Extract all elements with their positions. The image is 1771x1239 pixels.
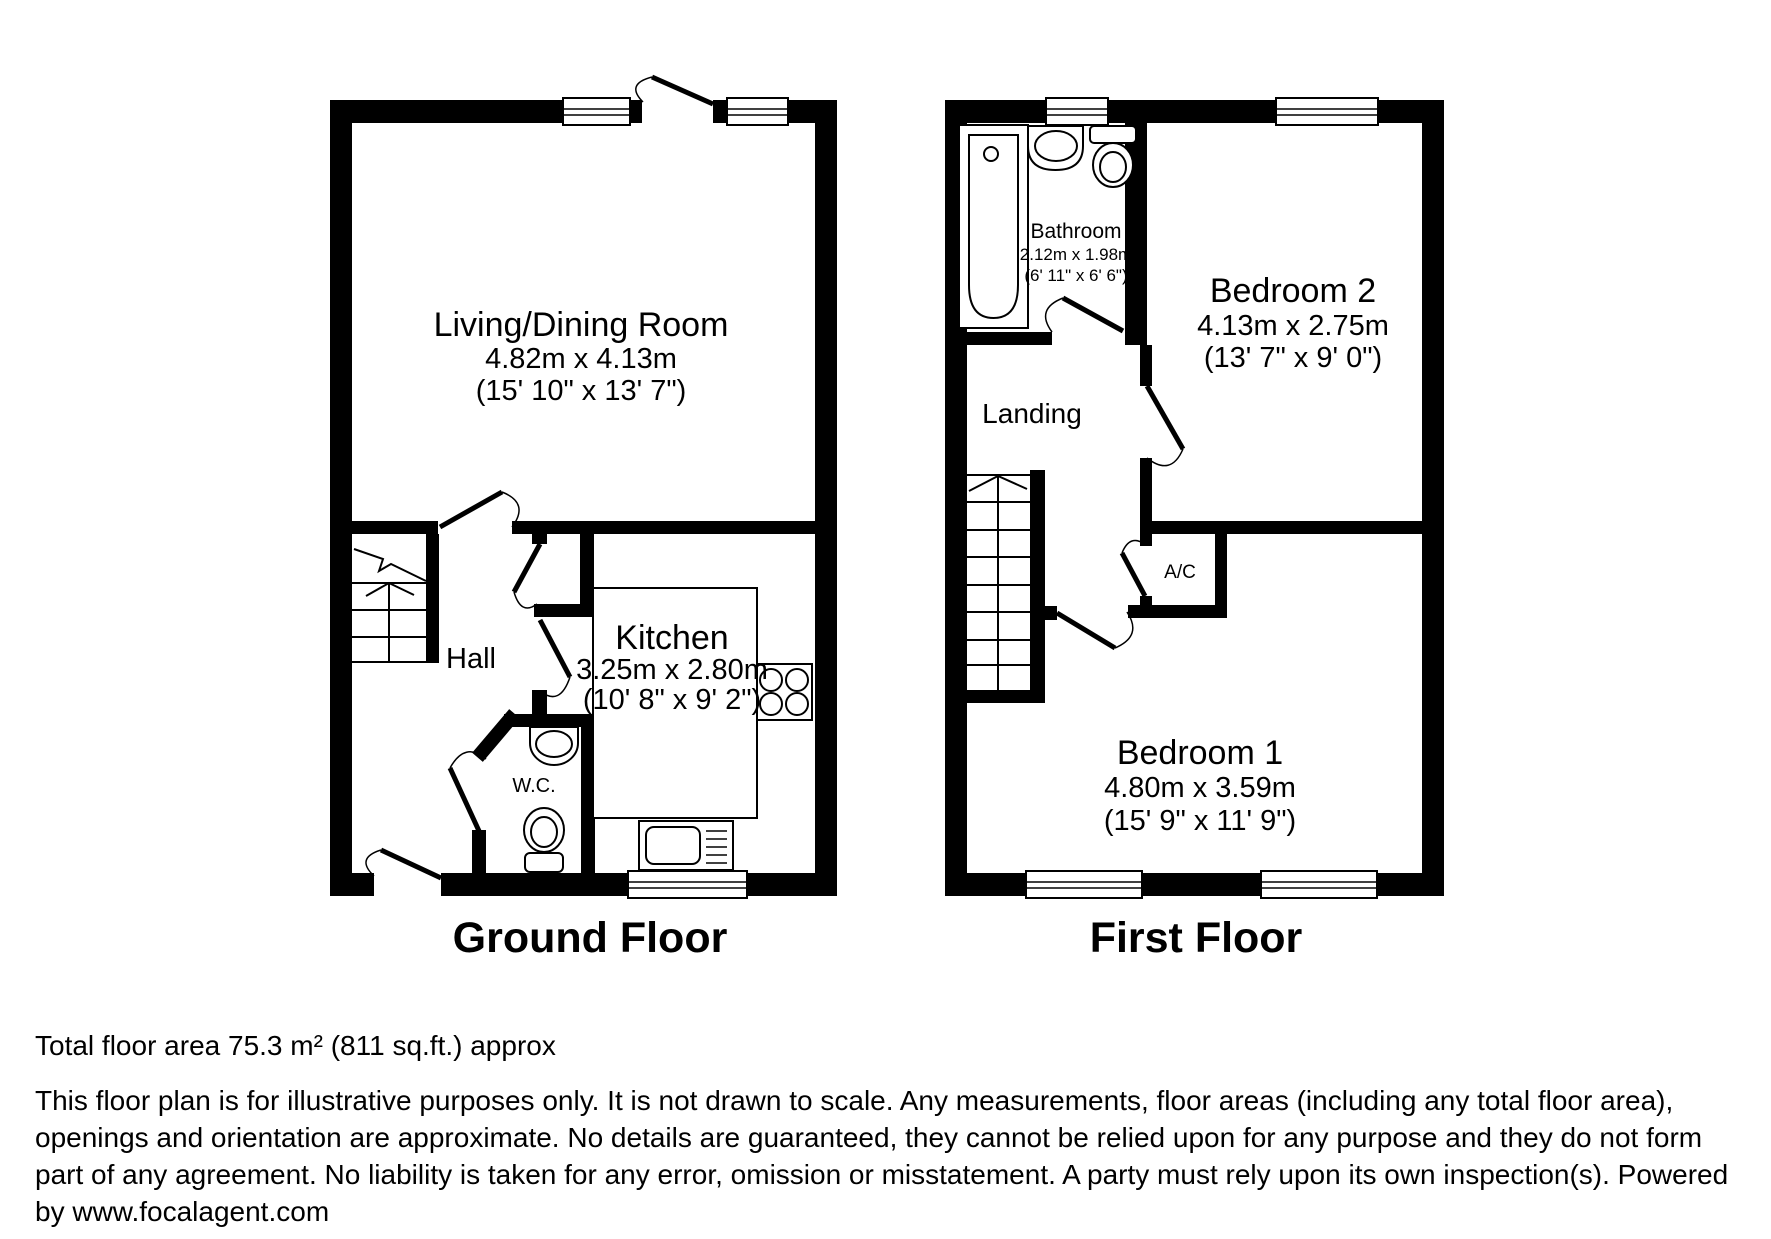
first-floor-plan: Bathroom 2.12m x 1.98m (6' 11" x 6' 6") …: [945, 98, 1444, 962]
disclaimer-line-3: part of any agreement. No liability is t…: [35, 1159, 1728, 1190]
stair-break-line: [354, 549, 426, 581]
kitchen-inner-door: [540, 620, 570, 697]
bedroom1-door: [1057, 612, 1133, 648]
disclaimer-line-4: by www.focalagent.com: [35, 1196, 329, 1227]
ac-label: A/C: [1164, 562, 1196, 583]
kitchen-name: Kitchen: [615, 619, 728, 657]
bedroom2-name: Bedroom 2: [1210, 272, 1376, 310]
bedroom1-window-left: [1026, 871, 1142, 898]
bedroom1-window-right: [1261, 871, 1377, 898]
wc-door: [450, 752, 486, 831]
disclaimer-line-2: openings and orientation are approximate…: [35, 1122, 1702, 1153]
kitchen-door: [514, 544, 540, 608]
total-floor-area: Total floor area 75.3 m² (811 sq.ft.) ap…: [35, 1030, 556, 1061]
bedroom2-dim-ft: (13' 7" x 9' 0"): [1204, 342, 1382, 374]
landing-label: Landing: [982, 398, 1082, 429]
hall-label: Hall: [446, 643, 496, 675]
wc-label: W.C.: [512, 775, 555, 797]
kitchen-sink-unit: [639, 821, 733, 870]
floor-plan-page: Living/Dining Room 4.82m x 4.13m (15' 10…: [0, 0, 1771, 1239]
bedroom1-dim-ft: (15' 9" x 11' 9"): [1104, 805, 1296, 837]
wc-diagonal-wall: [482, 719, 510, 752]
living-window-left: [563, 98, 630, 125]
bathroom-dim-m: 2.12m x 1.98m: [1020, 245, 1132, 264]
wc-fixtures: [524, 727, 578, 872]
ground-floor-walls: [330, 100, 837, 896]
bathroom-dim-ft: (6' 11" x 6' 6"): [1024, 266, 1127, 285]
footer: Total floor area 75.3 m² (811 sq.ft.) ap…: [35, 1030, 1728, 1227]
bedroom1-name: Bedroom 1: [1117, 734, 1283, 772]
bathroom-sink: [1028, 126, 1083, 170]
bathroom-toilet: [1090, 126, 1136, 187]
living-room-name: Living/Dining Room: [434, 306, 729, 344]
ac-door: [1122, 541, 1146, 597]
bedroom2-dim-m: 4.13m x 2.75m: [1197, 310, 1389, 342]
bedroom2-door: [1147, 386, 1183, 466]
ground-floor-plan: Living/Dining Room 4.82m x 4.13m (15' 10…: [330, 77, 837, 962]
patio-door: [636, 77, 713, 104]
bathroom-name: Bathroom: [1030, 220, 1121, 243]
kitchen-dim-ft: (10' 8" x 9' 2"): [583, 684, 761, 716]
bathroom-window: [1046, 98, 1108, 125]
ground-floor-title: Ground Floor: [453, 914, 728, 962]
staircase-ground: [352, 549, 426, 662]
bedroom2-window: [1276, 98, 1378, 125]
wc-sink: [530, 727, 578, 765]
bath-tub: [959, 125, 1028, 328]
living-window-right: [727, 98, 788, 125]
disclaimer-line-1: This floor plan is for illustrative purp…: [35, 1085, 1673, 1116]
living-room-dim-m: 4.82m x 4.13m: [485, 343, 677, 375]
bedroom1-dim-m: 4.80m x 3.59m: [1104, 772, 1296, 804]
first-floor-title: First Floor: [1090, 914, 1303, 962]
kitchen-window: [628, 871, 747, 898]
staircase-first: [967, 475, 1030, 690]
living-room-door: [440, 492, 519, 527]
floor-plan-svg: Living/Dining Room 4.82m x 4.13m (15' 10…: [0, 0, 1771, 1239]
kitchen-dim-m: 3.25m x 2.80m: [576, 654, 768, 686]
living-room-dim-ft: (15' 10" x 13' 7"): [476, 375, 687, 407]
first-floor-doors: [1046, 298, 1183, 648]
entrance-door: [366, 850, 441, 878]
wc-toilet: [524, 808, 564, 872]
bathroom-door: [1046, 298, 1123, 332]
